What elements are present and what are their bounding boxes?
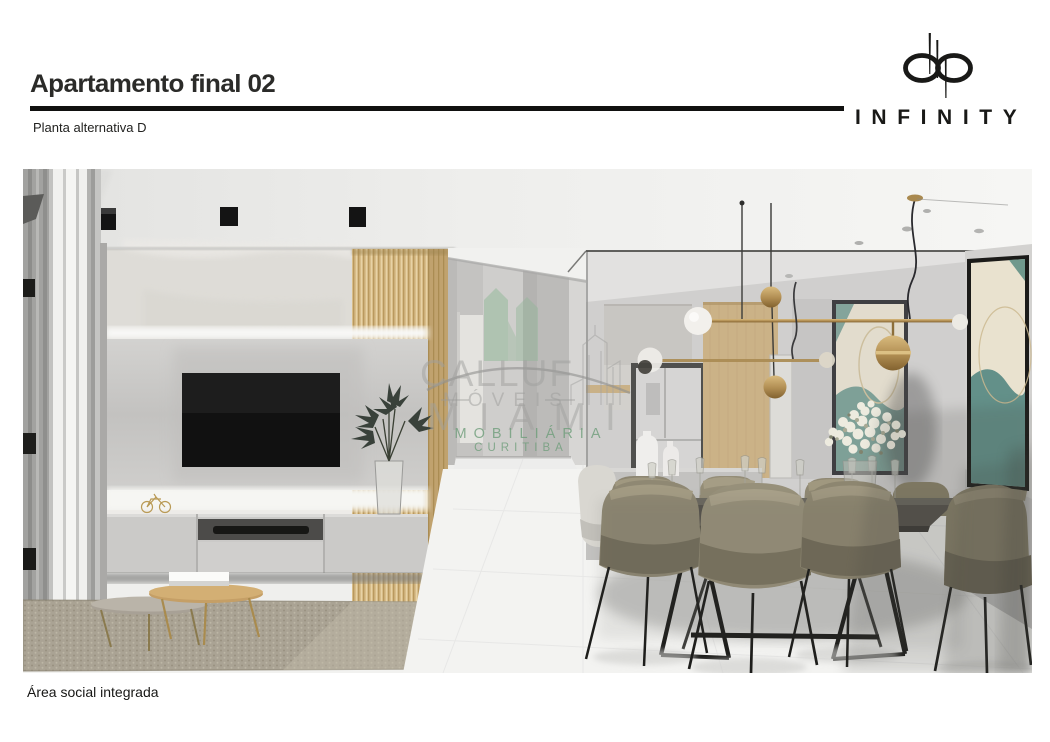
svg-text:CURITIBA: CURITIBA xyxy=(474,442,568,454)
svg-text:CALLUF: CALLUF xyxy=(420,353,574,394)
svg-text:INFINITY: INFINITY xyxy=(855,106,1027,129)
svg-text:MOBILIÁRIA: MOBILIÁRIA xyxy=(455,425,608,442)
